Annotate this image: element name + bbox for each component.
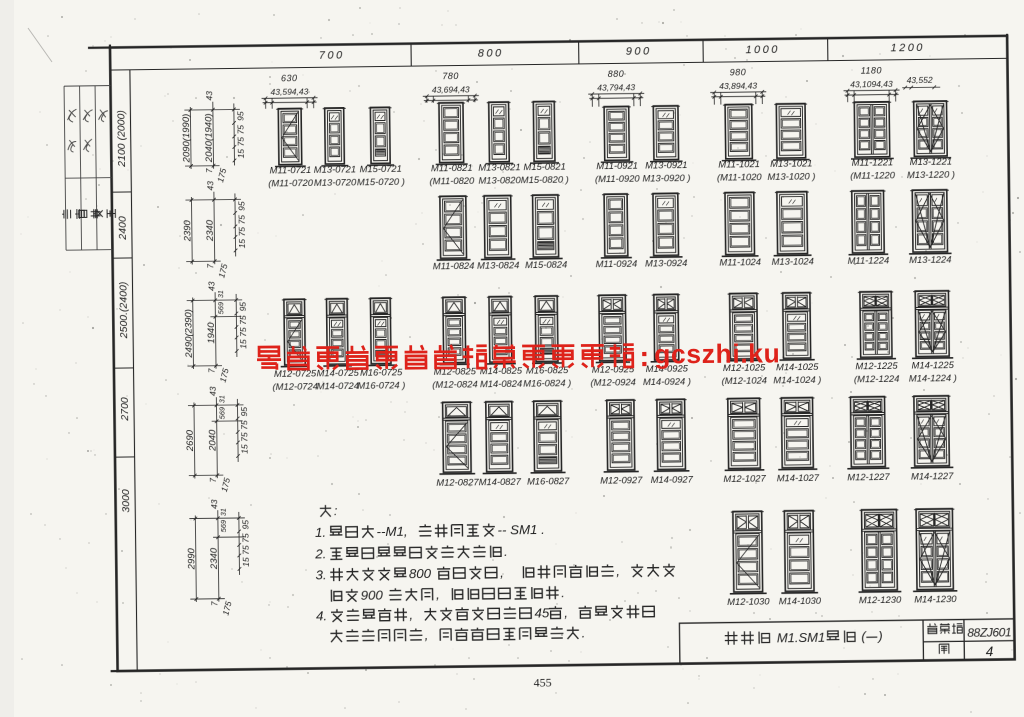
svg-text:75: 75 (235, 125, 245, 135)
svg-text:M13-0924: M13-0924 (645, 257, 687, 269)
svg-text:2.: 2. (314, 546, 326, 561)
svg-text:(M12-0824: (M12-0824 (432, 378, 478, 390)
svg-text:M15-0821: M15-0821 (523, 160, 565, 172)
svg-text:(M12-1024: (M12-1024 (721, 375, 767, 387)
svg-text:M14-0824: M14-0824 (480, 378, 522, 390)
svg-text:M11-0821: M11-0821 (431, 162, 473, 174)
svg-text:,: , (436, 587, 440, 602)
svg-text:7: 7 (208, 368, 217, 373)
svg-text:.: . (504, 544, 508, 559)
svg-text:2040: 2040 (207, 429, 218, 452)
svg-text:4.: 4. (316, 608, 327, 623)
svg-text:43: 43 (208, 386, 218, 396)
svg-text:M15-0721: M15-0721 (360, 163, 402, 175)
svg-text:2690: 2690 (185, 429, 196, 452)
svg-text:43,894,43: 43,894,43 (719, 81, 757, 91)
svg-text:,: , (409, 607, 413, 622)
svg-text:M12-1230: M12-1230 (859, 594, 902, 606)
svg-text:M11-1221: M11-1221 (852, 156, 894, 168)
svg-text:M12-0925: M12-0925 (592, 363, 635, 375)
svg-text:31: 31 (218, 290, 225, 298)
svg-text:43: 43 (209, 499, 219, 509)
svg-text:M11-1021: M11-1021 (718, 158, 760, 170)
svg-text:M14-1025: M14-1025 (776, 361, 819, 373)
svg-text:M13-1020 ): M13-1020 ) (767, 170, 815, 182)
svg-text:M16-0824 ): M16-0824 ) (523, 377, 571, 389)
svg-text:569: 569 (216, 301, 225, 314)
svg-text:75: 75 (241, 545, 251, 555)
svg-text:31: 31 (221, 508, 228, 516)
svg-text:.: . (582, 625, 586, 640)
svg-text:630: 630 (281, 73, 298, 83)
svg-text:75: 75 (236, 137, 246, 147)
svg-text:95: 95 (240, 520, 250, 530)
svg-text:75: 75 (239, 420, 249, 430)
svg-text:M13-0821: M13-0821 (478, 161, 520, 173)
svg-text:75: 75 (238, 327, 248, 337)
svg-text:M14-1027: M14-1027 (777, 472, 820, 484)
svg-text:.: . (561, 585, 565, 600)
svg-text:M15-0720 ): M15-0720 ) (357, 176, 405, 188)
svg-text:569: 569 (217, 406, 226, 419)
svg-text:43: 43 (206, 281, 216, 291)
svg-text:M13-0920 ): M13-0920 ) (642, 172, 690, 184)
svg-text:2040(1940): 2040(1940) (203, 113, 215, 163)
svg-text:2700: 2700 (119, 397, 131, 422)
svg-text:1940: 1940 (206, 322, 217, 344)
svg-text:M14-0927: M14-0927 (651, 473, 694, 485)
svg-text:4: 4 (986, 644, 994, 659)
svg-text:15: 15 (237, 239, 247, 249)
svg-text:(M12-1224: (M12-1224 (854, 373, 900, 385)
svg-text:M14-1230: M14-1230 (914, 593, 957, 605)
svg-text:800: 800 (409, 566, 432, 581)
svg-text:--M1,: --M1, (376, 524, 407, 539)
svg-text:M15-0824: M15-0824 (525, 259, 567, 271)
svg-text:15: 15 (236, 149, 246, 159)
svg-text:1200: 1200 (890, 42, 925, 54)
svg-text:7: 7 (209, 477, 218, 482)
svg-text:43,1094,43: 43,1094,43 (850, 79, 893, 90)
svg-text:3000: 3000 (120, 489, 132, 513)
svg-text:700: 700 (319, 49, 345, 61)
svg-text:569: 569 (219, 519, 228, 532)
svg-text:95: 95 (238, 302, 248, 312)
svg-text:3.: 3. (315, 567, 326, 582)
svg-text:M13-0921: M13-0921 (645, 159, 687, 171)
svg-text:2500.(2400): 2500.(2400) (117, 282, 130, 340)
svg-text:7: 7 (210, 601, 219, 606)
svg-text:(M12-0924: (M12-0924 (590, 376, 636, 388)
svg-text:M14-0827: M14-0827 (479, 476, 522, 488)
svg-text:43: 43 (205, 181, 215, 191)
svg-text:M14-1030: M14-1030 (779, 595, 822, 607)
svg-text:75: 75 (237, 215, 247, 225)
svg-text:M13-1221: M13-1221 (910, 155, 952, 167)
svg-text:880: 880 (608, 69, 625, 79)
svg-text:43,694,43: 43,694,43 (432, 84, 470, 94)
svg-text:1000: 1000 (745, 44, 780, 56)
svg-text:900: 900 (361, 588, 384, 603)
svg-text:2090(1990): 2090(1990) (181, 114, 193, 164)
svg-text:2990: 2990 (186, 547, 197, 570)
svg-text:95: 95 (237, 201, 247, 211)
svg-text:M11-0921: M11-0921 (596, 159, 638, 171)
svg-text:2100 (2000): 2100 (2000) (115, 110, 128, 168)
svg-text:M11-1224: M11-1224 (848, 254, 890, 266)
svg-text:M12-0827: M12-0827 (436, 476, 479, 488)
svg-text:75: 75 (238, 315, 248, 325)
svg-text:1.: 1. (315, 525, 326, 540)
svg-text:M12-1227: M12-1227 (847, 471, 890, 483)
svg-text:M13-1021: M13-1021 (770, 157, 812, 169)
svg-text:M13-1224: M13-1224 (909, 253, 951, 265)
svg-text:43,794,43: 43,794,43 (597, 82, 635, 92)
svg-text:800: 800 (478, 47, 504, 59)
svg-text:95: 95 (239, 407, 249, 417)
svg-text:980: 980 (730, 67, 747, 77)
svg-text:455: 455 (534, 675, 552, 689)
svg-text:2340: 2340 (209, 547, 220, 570)
svg-text:,: , (500, 565, 504, 580)
svg-text:,: , (425, 627, 429, 642)
svg-text:M12-1225: M12-1225 (855, 360, 898, 372)
svg-text:gcszhi.ku: gcszhi.ku (654, 338, 780, 369)
svg-text:2400: 2400 (117, 216, 129, 241)
svg-text:M11-0721: M11-0721 (270, 164, 312, 176)
svg-text:43,594,43: 43,594,43 (270, 86, 308, 96)
svg-text:M16-0724 ): M16-0724 ) (357, 379, 405, 391)
svg-text:M16-0827: M16-0827 (527, 475, 570, 487)
svg-text:-- SM1 .: -- SM1 . (497, 522, 544, 538)
svg-text:M11-0824: M11-0824 (433, 260, 475, 272)
svg-text:M14-0724: M14-0724 (317, 380, 359, 392)
svg-text:7: 7 (206, 263, 215, 268)
svg-text:(M11-0720: (M11-0720 (268, 177, 314, 189)
svg-text:M12-1030: M12-1030 (727, 596, 770, 608)
svg-text:43,552: 43,552 (907, 75, 933, 85)
svg-text:M12-0927: M12-0927 (600, 474, 643, 486)
svg-text:15: 15 (240, 444, 250, 454)
svg-text:780: 780 (442, 71, 459, 81)
svg-text:M14-1024 ): M14-1024 ) (773, 374, 821, 386)
svg-text:(M11-0820: (M11-0820 (429, 175, 475, 187)
svg-text:2390: 2390 (182, 219, 193, 242)
svg-text:(M11-1020: (M11-1020 (717, 171, 763, 183)
svg-text:15: 15 (241, 557, 251, 567)
svg-text:900: 900 (626, 45, 652, 57)
svg-text:75: 75 (237, 227, 247, 237)
svg-text:15: 15 (238, 339, 248, 349)
svg-text:M13-1220 ): M13-1220 ) (907, 168, 955, 180)
svg-text:M14-0924 ): M14-0924 ) (643, 376, 691, 388)
svg-text::: : (334, 504, 338, 518)
svg-text:7: 7 (205, 168, 214, 173)
svg-text:88ZJ601: 88ZJ601 (967, 625, 1011, 640)
svg-text:M13-1024: M13-1024 (771, 255, 813, 267)
svg-text:(M11-0920: (M11-0920 (595, 172, 641, 184)
svg-text:31: 31 (219, 395, 226, 403)
svg-text:2490(2390): 2490(2390) (183, 309, 195, 359)
svg-text:M1.SM1: M1.SM1 (777, 630, 826, 646)
svg-text:75: 75 (239, 432, 249, 442)
svg-text:2340: 2340 (205, 219, 216, 242)
svg-text:M14-1227: M14-1227 (911, 470, 954, 482)
svg-text:95: 95 (235, 111, 245, 121)
svg-text:M13-0720: M13-0720 (314, 176, 357, 188)
svg-text:M14-1224 ): M14-1224 ) (909, 372, 957, 384)
svg-text:M13-0820: M13-0820 (478, 174, 521, 186)
svg-text:,: , (616, 563, 620, 578)
svg-text:M11-1024: M11-1024 (719, 256, 761, 268)
svg-text:75: 75 (241, 533, 251, 543)
svg-text:M14-1225: M14-1225 (911, 359, 954, 371)
svg-text:43: 43 (204, 91, 214, 101)
svg-text:M13-0721: M13-0721 (314, 163, 356, 175)
svg-text:,: , (564, 605, 568, 620)
svg-text:M15-0820 ): M15-0820 ) (521, 173, 569, 185)
svg-text:(M11-1220: (M11-1220 (850, 169, 896, 181)
svg-text:M13-0824: M13-0824 (477, 259, 519, 271)
svg-text:M11-0924: M11-0924 (596, 258, 638, 270)
svg-text:M12-1027: M12-1027 (723, 473, 766, 485)
svg-text:(M12-0724: (M12-0724 (272, 380, 318, 392)
svg-text:1180: 1180 (861, 65, 882, 75)
svg-text:45: 45 (534, 605, 550, 620)
